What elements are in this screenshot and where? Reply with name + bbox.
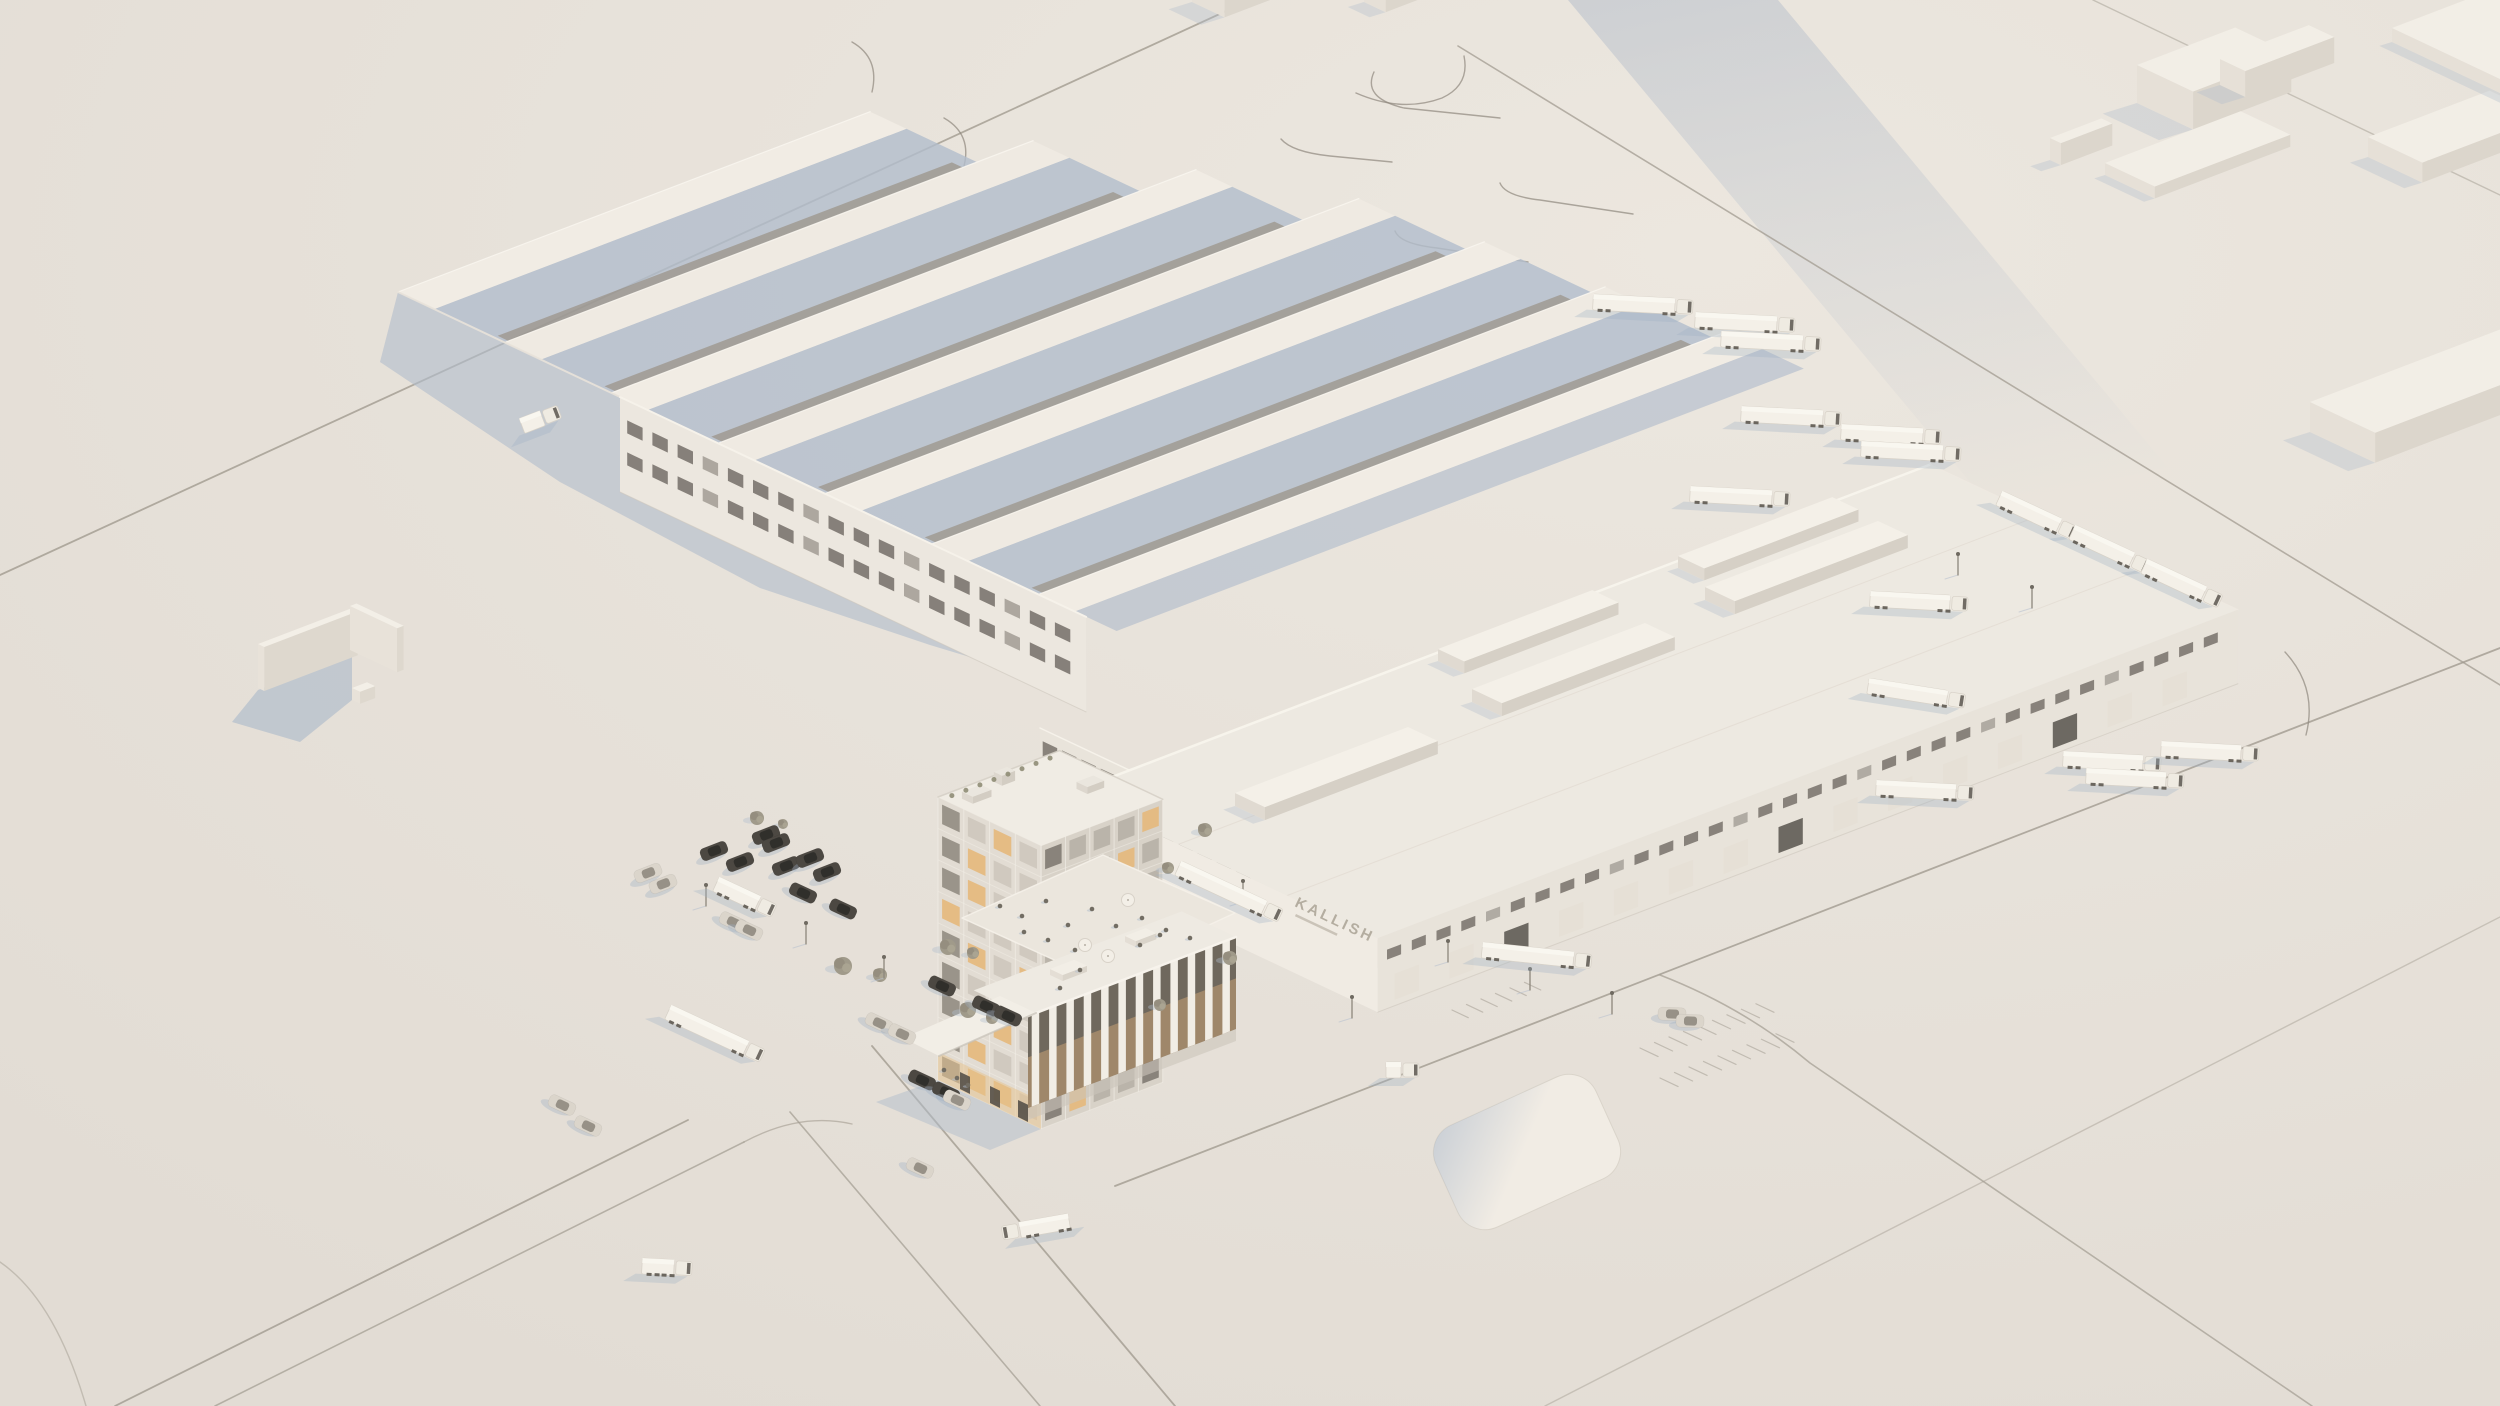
render-root bbox=[0, 0, 2500, 1406]
scene-svg: KALLISH bbox=[0, 0, 2500, 1406]
industrial-campus-render: KALLISH bbox=[0, 0, 2500, 1406]
